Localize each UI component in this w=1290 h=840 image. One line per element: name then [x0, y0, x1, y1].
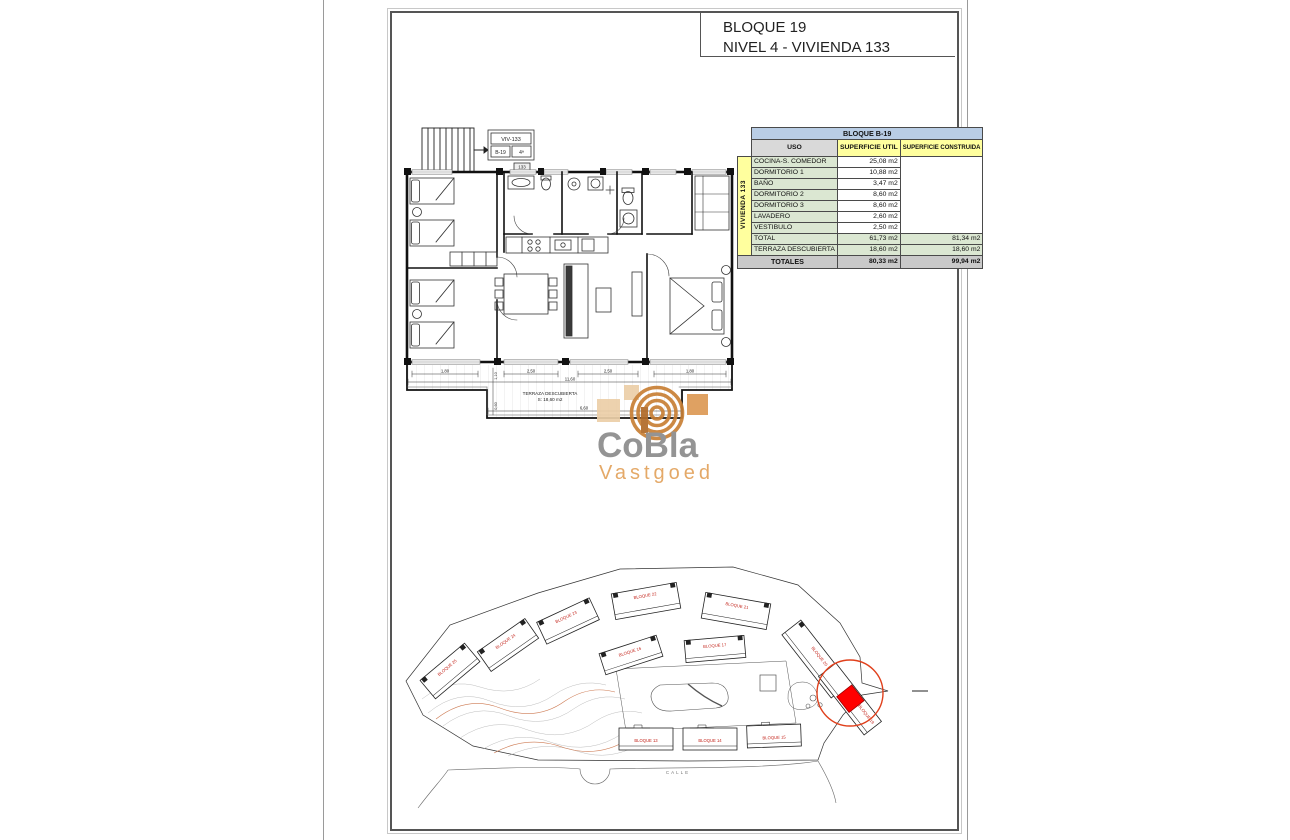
table-block-header: BLOQUE B-19 — [752, 128, 983, 140]
row-uso: LAVADERO — [752, 212, 838, 223]
interior-walls — [407, 172, 692, 362]
building: BLOQUE 17 — [684, 635, 746, 662]
col-header-uso: USO — [752, 140, 838, 157]
terrace-area-label: S: 18,60 m2 — [538, 397, 563, 402]
svg-text:B-19: B-19 — [495, 150, 506, 156]
bedroom-1-furniture — [410, 178, 454, 246]
building: BLOQUE 23 — [537, 598, 600, 644]
construida-merged-cell — [900, 157, 983, 234]
row-uso: BAÑO — [752, 179, 838, 190]
terraza-label: TERRAZA DESCUBIERTA — [752, 245, 838, 256]
building: BLOQUE 14 — [683, 725, 737, 750]
areas-table: BLOQUE B-19 USO SUPERFICIE UTIL SUPERFIC… — [737, 127, 983, 269]
svg-text:2,50: 2,50 — [527, 369, 536, 374]
total-construida: 81,34 m2 — [900, 234, 983, 245]
totales-util: 80,33 m2 — [837, 256, 900, 269]
road-label: CALLE — [666, 770, 690, 775]
building: BLOQUE 13 — [619, 725, 673, 750]
title-line-1: BLOQUE 19 — [723, 18, 955, 38]
total-util: 61,73 m2 — [837, 234, 900, 245]
master-bedroom-furniture — [670, 176, 731, 347]
svg-text:2,50: 2,50 — [604, 369, 613, 374]
row-util: 25,08 m2 — [837, 157, 900, 168]
svg-text:4ª: 4ª — [519, 150, 524, 156]
bedroom-2-furniture — [410, 280, 454, 348]
paper-right-edge — [967, 0, 968, 840]
svg-text:1,10: 1,10 — [494, 372, 498, 379]
svg-text:1,80: 1,80 — [686, 369, 695, 374]
terraza-util: 18,60 m2 — [837, 245, 900, 256]
svg-text:6,60: 6,60 — [580, 406, 589, 411]
plan-sheet: BLOQUE 19 NIVEL 4 - VIVIENDA 133 BLOQUE … — [0, 0, 1290, 840]
total-label: TOTAL — [752, 234, 838, 245]
building-highlight: BLOQUE 19 — [819, 663, 882, 735]
col-header-util: SUPERFICIE UTIL — [837, 140, 900, 157]
building: BLOQUE 22 — [611, 582, 681, 619]
door-swings — [497, 216, 669, 320]
building: BLOQUE 16 — [599, 635, 663, 674]
totales-label: TOTALES — [738, 256, 838, 269]
row-util: 2,60 m2 — [837, 212, 900, 223]
cobla-logo: CoBla Vastgoed — [597, 385, 747, 483]
paper-left-edge — [323, 0, 324, 840]
row-util: 8,60 m2 — [837, 201, 900, 212]
row-uso: COCINA-S. COMEDOR — [752, 157, 838, 168]
row-uso: VESTIBULO — [752, 223, 838, 234]
terrace-label: TERRAZA DESCUBIERTA — [523, 391, 579, 396]
svg-text:0,60: 0,60 — [494, 402, 498, 409]
kitchen — [506, 237, 608, 253]
svg-text:VIV-133: VIV-133 — [501, 137, 521, 143]
svg-text:BLOQUE 14: BLOQUE 14 — [698, 738, 722, 743]
row-util: 2,50 m2 — [837, 223, 900, 234]
row-util: 10,88 m2 — [837, 168, 900, 179]
building: BLOQUE 21 — [701, 592, 771, 629]
row-uso: DORMITORIO 2 — [752, 190, 838, 201]
hob-icon — [528, 240, 540, 251]
col-header-construida: SUPERFICIE CONSTRUIDA — [900, 140, 983, 157]
logo-name: CoBla — [597, 426, 699, 465]
terraza-construida: 18,60 m2 — [900, 245, 983, 256]
svg-text:133: 133 — [518, 165, 526, 170]
building: BLOQUE 24 — [477, 619, 538, 672]
svg-text:11,60: 11,60 — [565, 377, 576, 382]
totales-construida: 99,94 m2 — [900, 256, 983, 269]
title-block: BLOQUE 19 NIVEL 4 - VIVIENDA 133 — [700, 13, 955, 57]
wardrobe — [450, 252, 497, 266]
unit-tag: VIV-133 B-19 4ª 133 — [488, 130, 534, 170]
row-uso: DORMITORIO 1 — [752, 168, 838, 179]
row-util: 3,47 m2 — [837, 179, 900, 190]
pool-area — [616, 661, 822, 731]
siteplan-buildings: BLOQUE 25 BLOQUE 24 BLOQUE 23 BLOQUE 22 — [420, 582, 881, 750]
title-line-2: NIVEL 4 - VIVIENDA 133 — [723, 38, 955, 58]
svg-text:BLOQUE 15: BLOQUE 15 — [762, 735, 786, 741]
svg-text:BLOQUE 13: BLOQUE 13 — [634, 738, 658, 743]
row-util: 8,60 m2 — [837, 190, 900, 201]
svg-text:1,80: 1,80 — [441, 369, 450, 374]
siteplan-drawing: BLOQUE 25 BLOQUE 24 BLOQUE 23 BLOQUE 22 — [388, 563, 933, 815]
row-uso: DORMITORIO 3 — [752, 201, 838, 212]
logo-subtitle: Vastgoed — [599, 462, 714, 483]
staircase — [422, 128, 488, 172]
